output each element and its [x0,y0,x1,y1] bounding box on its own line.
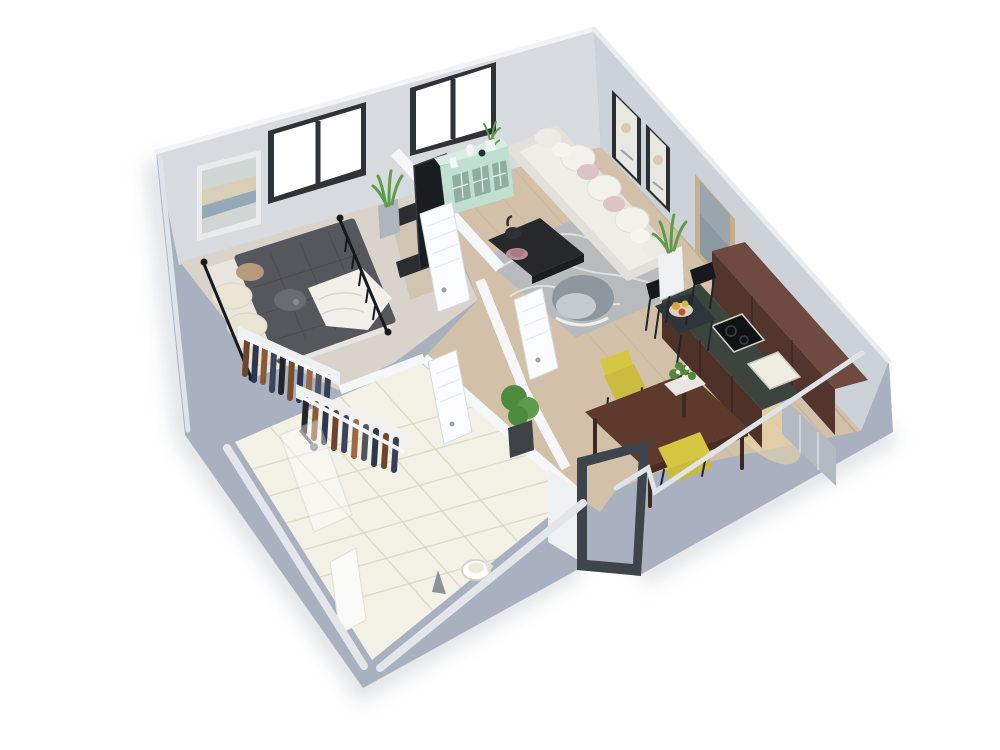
teapot [505,227,521,239]
pink-cushion [603,196,625,212]
brown-throw-pillow [236,263,264,281]
vase [466,144,474,156]
floor-plan-render [0,0,1000,750]
pink-cushion [577,164,599,180]
dark-bottle [479,150,486,157]
gray-neck-pillow [274,289,306,311]
